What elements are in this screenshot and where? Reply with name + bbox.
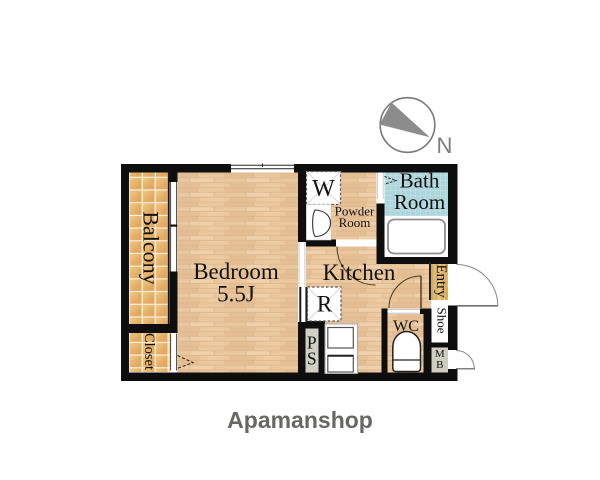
svg-text:W: W [312, 176, 335, 202]
svg-text:Kitchen: Kitchen [323, 260, 396, 285]
svg-text:B: B [436, 359, 443, 371]
svg-text:Bedroom: Bedroom [193, 259, 279, 284]
svg-text:Room: Room [339, 215, 371, 230]
svg-text:N: N [437, 133, 453, 158]
svg-text:Shoe: Shoe [435, 308, 450, 334]
svg-text:Closet: Closet [141, 333, 157, 370]
svg-text:5.5J: 5.5J [217, 282, 255, 307]
svg-text:Apamanshop: Apamanshop [227, 407, 373, 433]
svg-text:S: S [307, 349, 317, 369]
svg-text:Balcony: Balcony [139, 211, 164, 284]
svg-text:Room: Room [394, 190, 445, 214]
svg-text:R: R [317, 292, 333, 317]
svg-text:Bath: Bath [400, 169, 440, 193]
svg-text:Entry: Entry [433, 264, 449, 298]
